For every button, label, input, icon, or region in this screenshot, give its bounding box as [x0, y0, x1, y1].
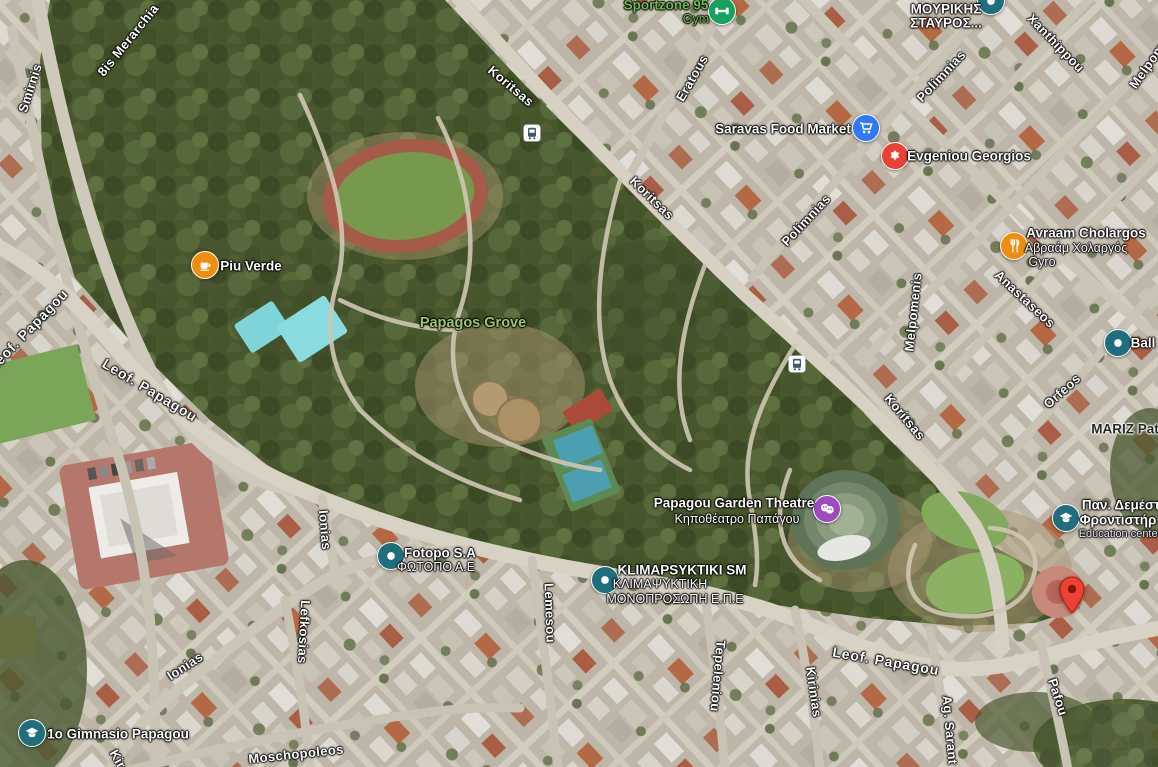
evgeniou-georgios-label[interactable]: Evgeniou Georgios: [907, 149, 1031, 164]
pan-demest-education-center-label-1: Φροντιστήρ: [1080, 513, 1157, 528]
mariz-label[interactable]: MARIZ Pat: [1091, 422, 1158, 437]
destination-pin-icon[interactable]: [1059, 576, 1085, 614]
coffee-cup-icon[interactable]: [191, 251, 219, 279]
sportzone-95-label[interactable]: Sportzone 95: [624, 0, 709, 13]
sportzone-95-label-1: Gym: [683, 12, 709, 26]
papagou-garden-theatre-label[interactable]: Papagou Garden Theatre: [654, 496, 815, 511]
graduation-cap-icon[interactable]: [1052, 504, 1080, 532]
dot-icon[interactable]: [1104, 329, 1132, 357]
ball-label[interactable]: Ball: [1131, 336, 1156, 351]
pan-demest-education-center-label[interactable]: Παν. Δεμέστ: [1082, 498, 1158, 513]
fotopo-sa-label-1: ΦΩΤΟΠΟ Α.Ε: [397, 560, 475, 574]
street-label-lemesou: Lemesou: [541, 583, 558, 643]
papagou-garden-theatre-label-1: Κηποθέατρο Παπάγου: [675, 512, 800, 526]
badge-icon[interactable]: [881, 142, 909, 170]
satellite-imagery[interactable]: [0, 0, 1158, 767]
bus-stop-icon[interactable]: [524, 125, 541, 142]
garden-theatre-structure: [792, 470, 900, 570]
shopping-cart-icon[interactable]: [852, 114, 880, 142]
pan-demest-education-center-label-2: Education center: [1079, 528, 1158, 540]
theater-masks-icon[interactable]: [813, 495, 841, 523]
avraam-cholargos-label[interactable]: Avraam Cholargos: [1026, 226, 1146, 241]
klimapsyktiki-sm-label-1: ΚΛΙΜΑΨΥΚΤΙΚΗ: [613, 577, 708, 591]
klimapsyktiki-sm-label-2: ΜΟΝΟΠΡΟΣΩΠΗ Ε.Π.Ε: [606, 592, 743, 606]
mourikis-stavros-label[interactable]: ΜΟΥΡΙΚΗΣ: [911, 2, 982, 17]
1o-gimnasio-papagou-label[interactable]: 1o Gimnasio Papagou: [47, 727, 189, 742]
avraam-cholargos-label-2: Gyro: [1028, 255, 1055, 269]
graduation-cap-icon[interactable]: [18, 719, 46, 747]
mourikis-stavros-label-1: ΣΤΑΥΡΟΣ...: [910, 16, 982, 31]
avraam-cholargos-label-1: Αβραάμ Χολαργός: [1025, 241, 1127, 255]
piu-verde-label[interactable]: Piu Verde: [220, 259, 282, 274]
fotopo-sa-label[interactable]: Fotopo S.A: [404, 546, 476, 561]
saravas-food-market-label[interactable]: Saravas Food Market: [715, 122, 851, 137]
satellite-map-viewport[interactable]: Papagos Grove Smirnis8is MerarchiaKorits…: [0, 0, 1158, 767]
klimapsyktiki-sm-label[interactable]: KLIMAPSYKTIKI SM: [617, 563, 746, 578]
bus-stop-icon[interactable]: [789, 356, 806, 373]
park-label-papagos-grove[interactable]: Papagos Grove: [420, 315, 526, 331]
playground-circle: [497, 398, 541, 442]
